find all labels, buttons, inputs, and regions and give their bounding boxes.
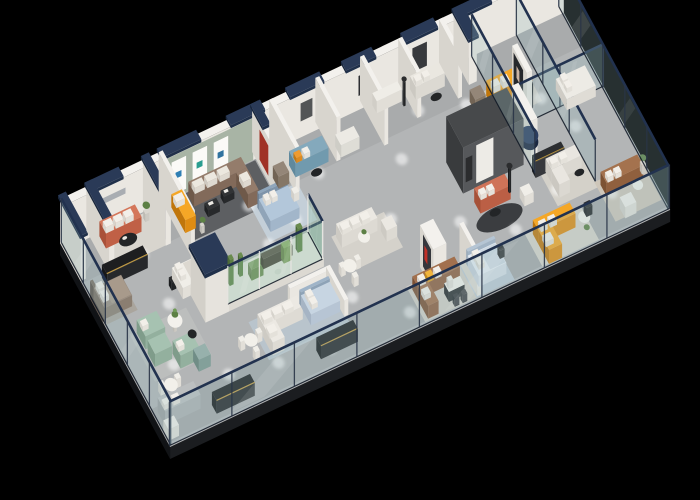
wall-art bbox=[466, 155, 473, 182]
floor-lamp bbox=[403, 80, 406, 107]
door-panel-white bbox=[476, 137, 493, 183]
render-canvas bbox=[0, 0, 700, 500]
floor-lamp bbox=[508, 166, 511, 193]
showroom-3d-render bbox=[0, 0, 700, 500]
